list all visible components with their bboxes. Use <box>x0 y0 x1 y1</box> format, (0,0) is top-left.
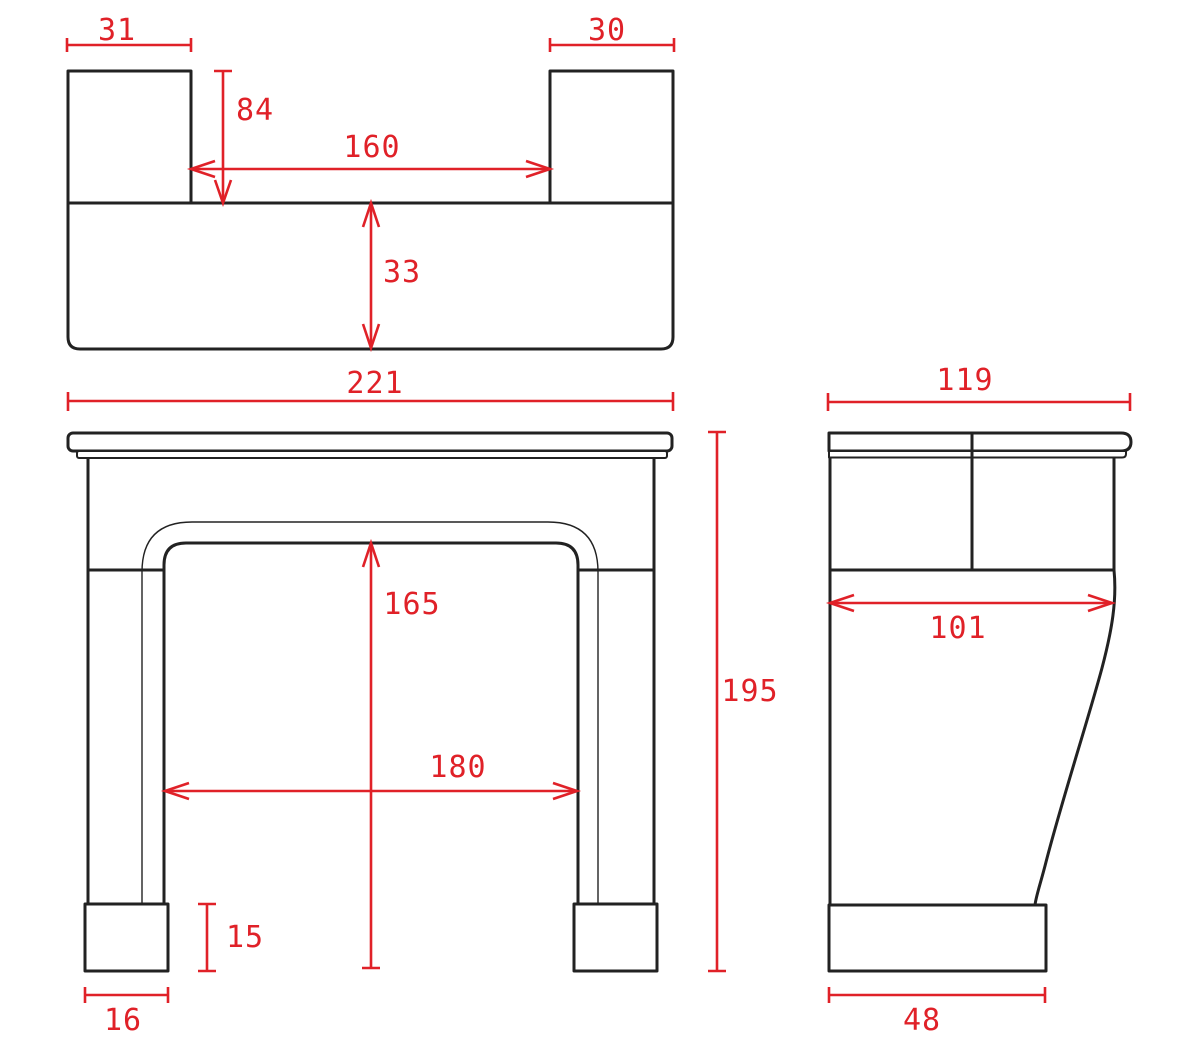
dim-side-shelf-depth: 119 <box>828 363 1130 411</box>
dim-front-foot-width: 16 <box>85 987 168 1038</box>
dim-label: 15 <box>226 920 264 955</box>
front-left-foot <box>85 904 168 971</box>
dim-label: 48 <box>903 1003 941 1038</box>
plan-right-block <box>550 71 673 203</box>
front-shelf-lip <box>77 451 667 458</box>
dim-side-foot-depth: 48 <box>829 987 1045 1038</box>
fireplace-dimension-drawing: 31 30 84 160 33 <box>0 0 1200 1050</box>
dim-front-overall-height: 195 <box>708 432 779 971</box>
dim-label: 221 <box>346 366 403 401</box>
dim-label: 119 <box>936 363 993 398</box>
front-right-foot <box>574 904 657 971</box>
side-ogee-curve <box>1035 570 1115 905</box>
dim-label: 160 <box>343 130 400 165</box>
side-view: 119 101 48 <box>828 363 1131 1038</box>
dim-label: 84 <box>236 93 274 128</box>
dim-label: 180 <box>429 750 486 785</box>
side-foot <box>829 905 1046 971</box>
plan-left-block <box>68 71 191 203</box>
side-shelf-lip <box>829 451 1126 458</box>
dim-label: 30 <box>588 13 626 48</box>
dim-plan-block-depth: 84 <box>214 71 274 203</box>
side-mantel-shelf <box>829 433 1131 451</box>
dim-label: 165 <box>383 587 440 622</box>
dim-plan-left-block-width: 31 <box>67 13 191 52</box>
dim-plan-gap-between-blocks: 160 <box>191 130 550 177</box>
dim-label: 31 <box>98 13 136 48</box>
technical-drawing-page: 31 30 84 160 33 <box>0 0 1200 1050</box>
front-mantel-shelf <box>68 433 672 451</box>
dim-front-foot-height: 15 <box>198 904 264 971</box>
front-view: 221 195 165 180 <box>68 366 779 1038</box>
dim-label: 33 <box>383 255 421 290</box>
dim-label: 16 <box>104 1003 142 1038</box>
dim-label: 101 <box>929 611 986 646</box>
dim-side-body-depth: 101 <box>830 595 1112 646</box>
dim-label: 195 <box>721 674 778 709</box>
dim-front-overall-width: 221 <box>68 366 673 411</box>
plan-view: 31 30 84 160 33 <box>67 13 674 349</box>
dim-plan-right-block-width: 30 <box>550 13 674 52</box>
